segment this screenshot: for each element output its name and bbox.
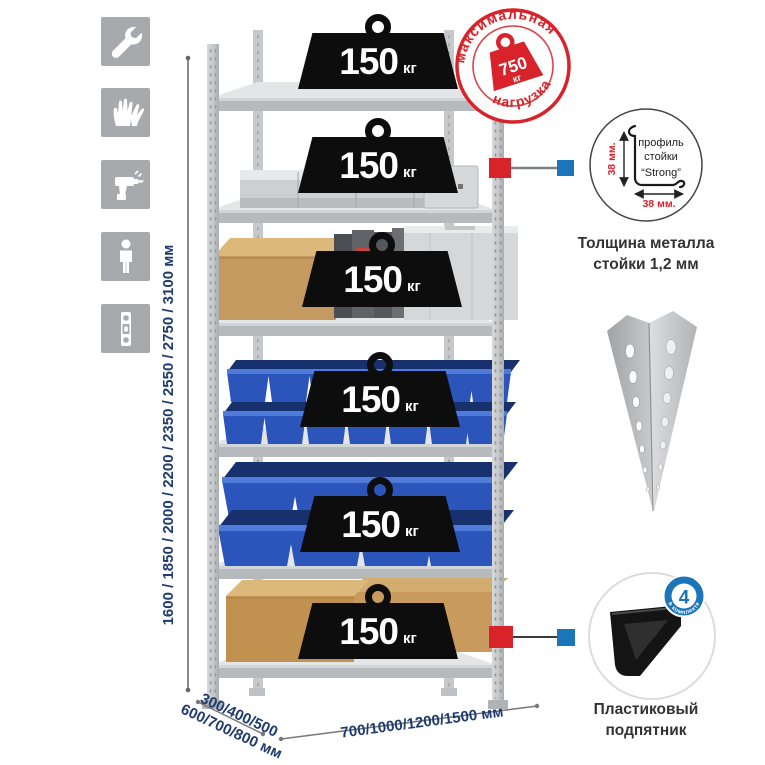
- weight-unit: кг: [403, 631, 417, 646]
- weight-unit: кг: [403, 165, 417, 180]
- weight-value: 150: [341, 506, 400, 543]
- weight-value: 150: [339, 43, 398, 80]
- foot-caption-line2: подпятник: [576, 720, 716, 741]
- blue-marker: [557, 629, 575, 646]
- foot-caption: Пластиковый подпятник: [576, 699, 716, 741]
- blue-marker: [557, 160, 574, 176]
- weight-unit: кг: [405, 399, 419, 414]
- shelf-weight-badge: 150кг: [300, 352, 460, 427]
- weight-value: 150: [339, 613, 398, 650]
- shelf-weight-badge: 150кг: [302, 232, 462, 307]
- shelf-weight-badge: 150кг: [300, 477, 460, 552]
- weight-unit: кг: [403, 61, 417, 76]
- profile-caption: Толщина металла стойки 1,2 мм: [566, 233, 726, 275]
- profile-caption-line1: Толщина металла: [566, 233, 726, 254]
- infographic-shelving-rack: 150кг 150кг 150кг 150кг 150кг 150кг макс…: [0, 0, 765, 765]
- profile-vertical-dim-label: 38 мм.: [606, 142, 618, 175]
- profile-horizontal-dim-label: 38 мм.: [642, 198, 675, 210]
- foot-caption-line1: Пластиковый: [576, 699, 716, 720]
- shelf-weight-badge: 150кг: [298, 118, 458, 193]
- red-marker: [489, 626, 513, 648]
- weight-value: 150: [341, 381, 400, 418]
- badge-value: 4: [679, 588, 690, 609]
- shelf-weight-badge: 150кг: [298, 584, 458, 659]
- red-marker: [489, 158, 511, 178]
- profile-label-line3: “Strong”: [641, 167, 681, 179]
- weight-unit: кг: [405, 524, 419, 539]
- weight-unit: кг: [407, 279, 421, 294]
- profile-label-line1: профиль: [638, 137, 684, 149]
- callout-bottom: [489, 626, 575, 648]
- height-dimension-label: 1600 / 1850 / 2000 / 2200 / 2350 / 2550 …: [160, 115, 180, 755]
- angle-post-image: [597, 299, 747, 534]
- callout-top: [489, 158, 574, 178]
- post-profile-detail: 38 мм. 38 мм. профиль стойки “Strong”: [587, 106, 705, 224]
- weight-value: 150: [343, 261, 402, 298]
- included-count-badge: 4 в комплекте: [664, 576, 705, 617]
- height-dimension-line: [186, 56, 191, 693]
- profile-caption-line2: стойки 1,2 мм: [566, 254, 726, 275]
- profile-label-line2: стойки: [644, 151, 678, 163]
- weight-value: 150: [339, 147, 398, 184]
- plastic-foot-detail: 4 в комплекте: [586, 566, 726, 714]
